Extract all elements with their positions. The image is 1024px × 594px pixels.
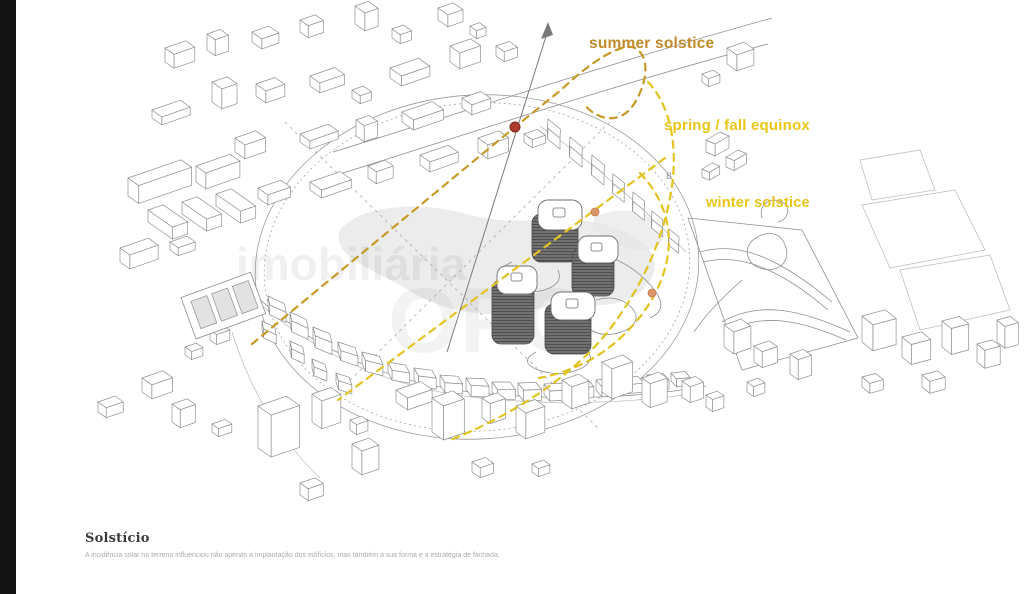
building-box	[1005, 323, 1019, 349]
caption-body: A incidência solar no terreno influencio…	[85, 552, 945, 559]
building-box	[471, 385, 489, 397]
equinox-label: spring / fall equinox	[664, 117, 810, 134]
caption-title: Solstício	[85, 531, 945, 546]
summer-solstice-label: summer solstice	[589, 35, 715, 52]
tower	[572, 236, 618, 296]
equinox-sun-marker	[591, 208, 599, 216]
tower	[492, 266, 537, 344]
screen-edge-bar	[0, 0, 16, 594]
site-axonometric-diagram: imobiliária OPC	[0, 0, 1024, 594]
tower	[545, 292, 595, 354]
marker-b-label: B	[666, 171, 672, 181]
winter-solstice-label: winter solstice	[705, 195, 810, 211]
winter-sun-marker	[648, 289, 656, 297]
building-box	[951, 324, 968, 355]
three-bay-building	[181, 272, 266, 339]
building-box	[524, 390, 542, 402]
solar-study-slide: imobiliária OPC	[0, 0, 1024, 594]
summer-sun-marker	[510, 122, 520, 132]
caption-block: Solstício A incidência solar no terreno …	[85, 531, 945, 559]
